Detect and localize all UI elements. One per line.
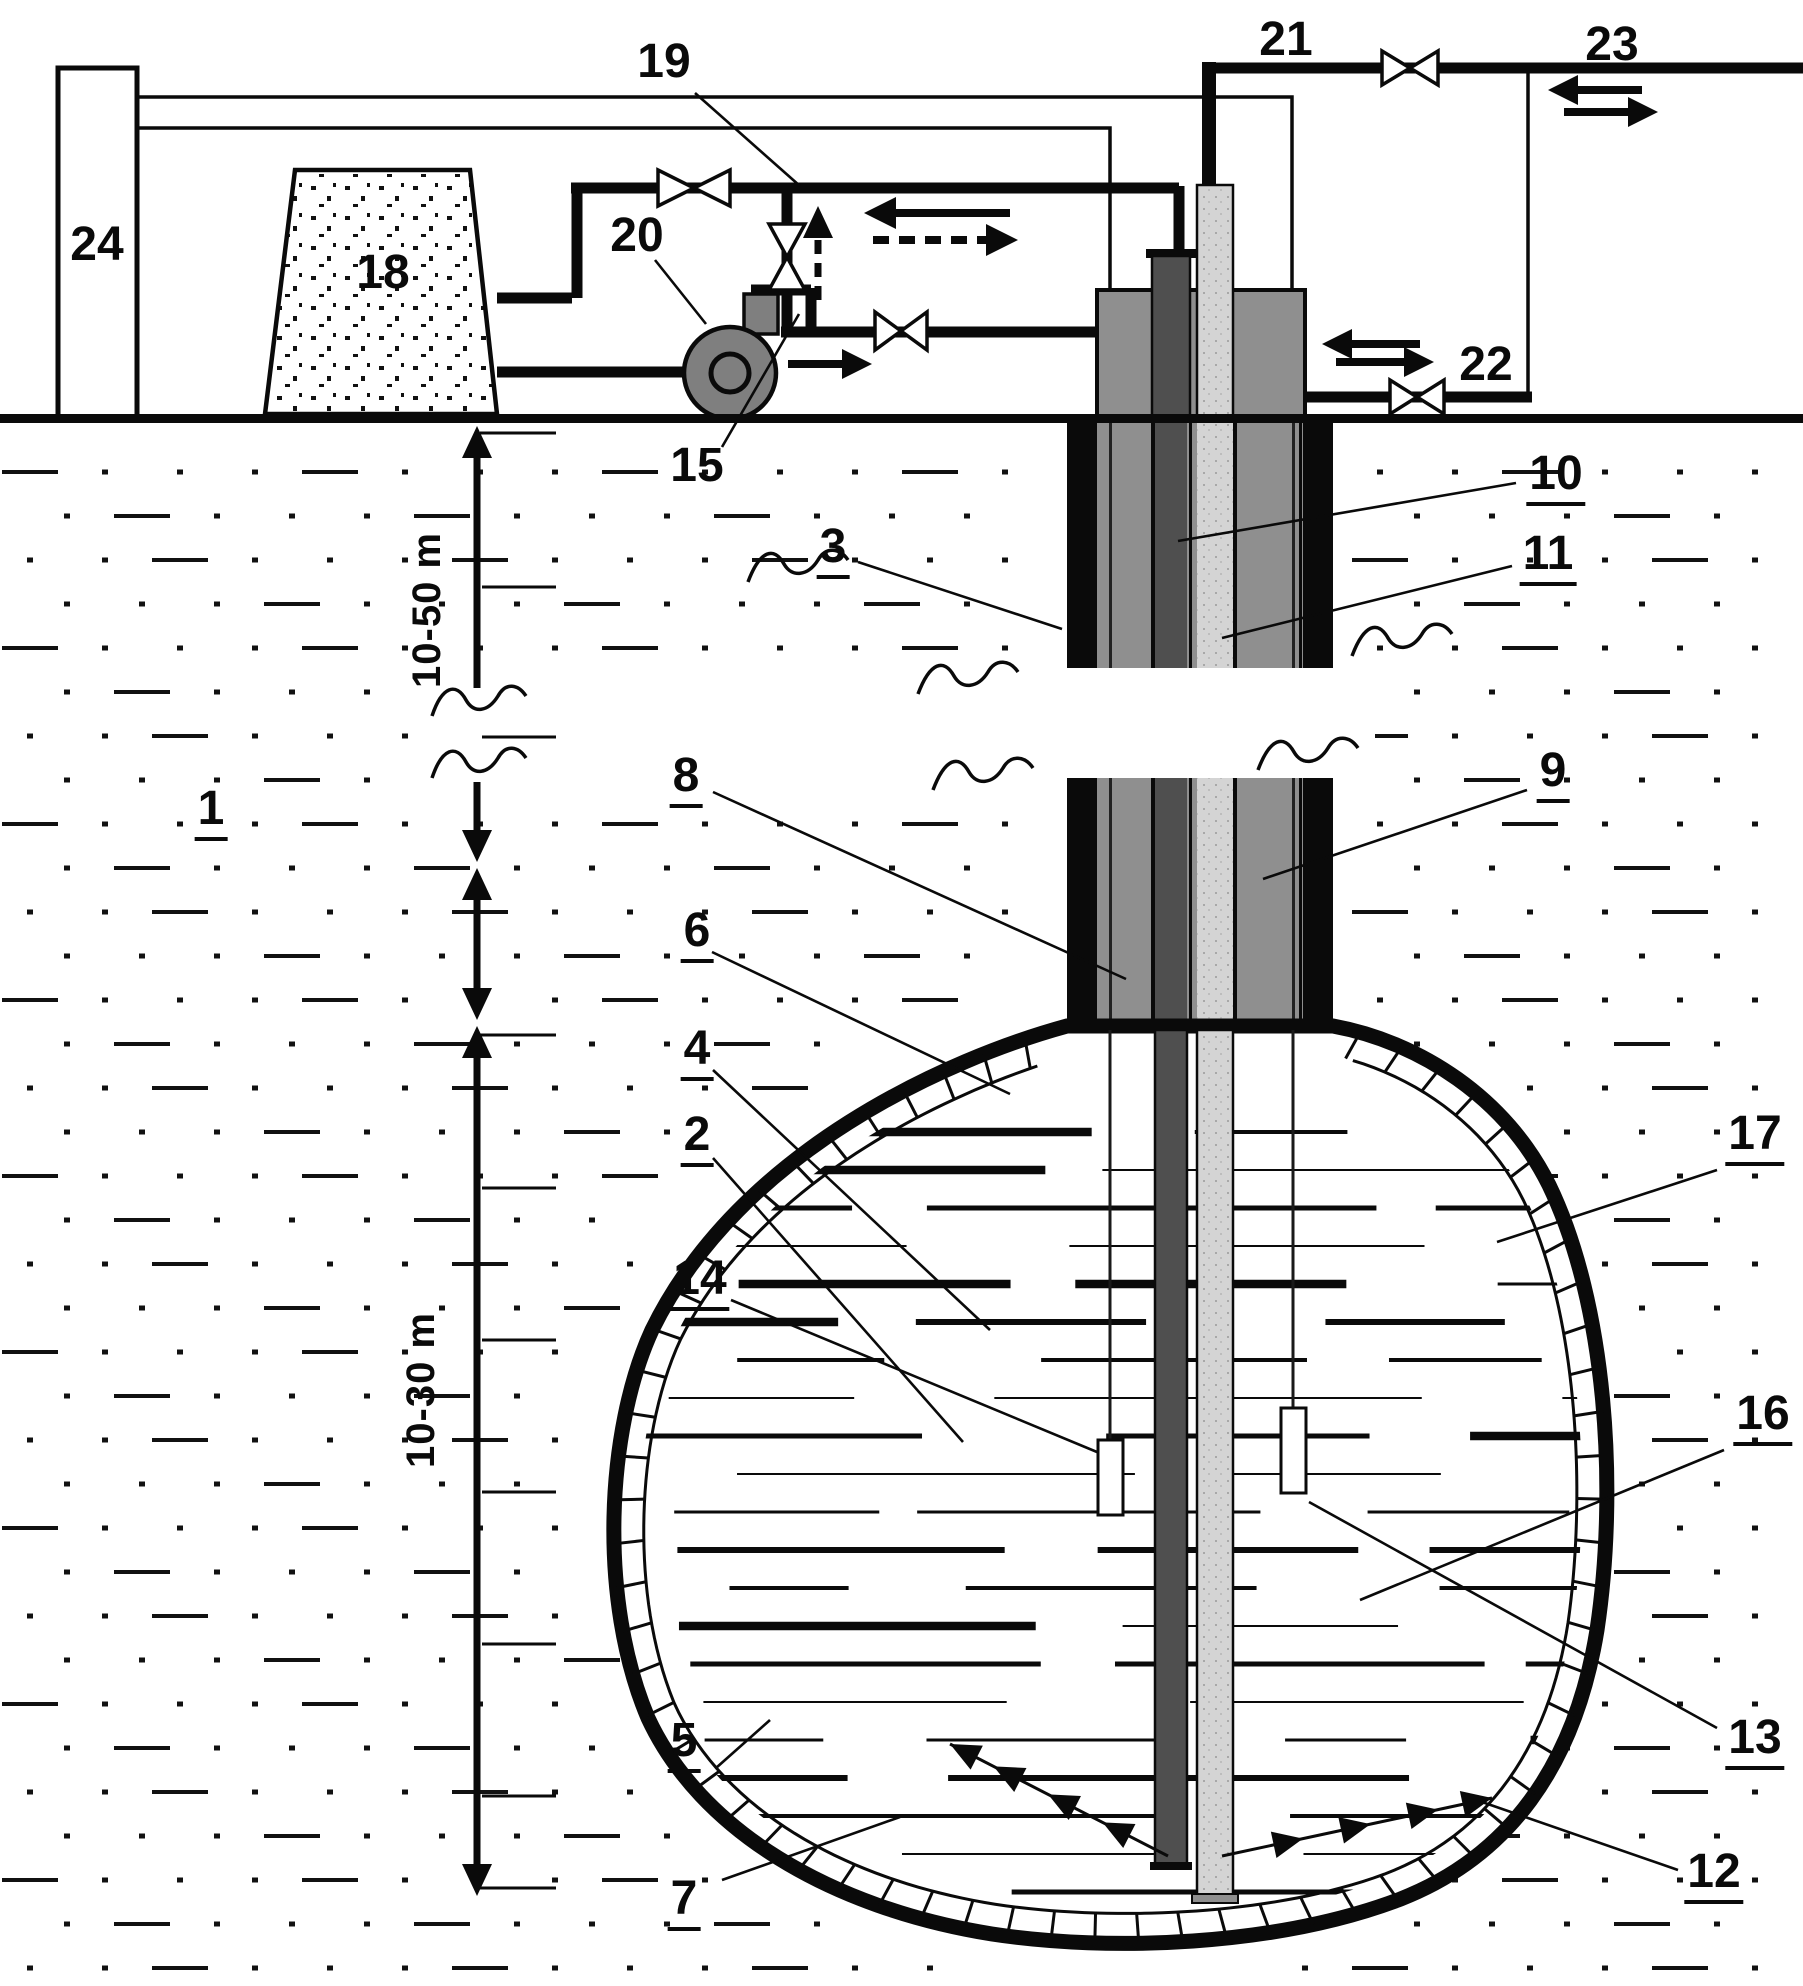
valve-icon <box>875 312 927 350</box>
flow-arrow-right-icon <box>788 349 872 379</box>
central-pipe <box>1197 1030 1233 1898</box>
flow-arrow-right-dashed-icon <box>873 224 1018 256</box>
flow-arrow-right-icon <box>1564 97 1658 127</box>
surface-plant <box>58 51 1803 419</box>
valve-icon <box>658 170 730 206</box>
valve-icon <box>1382 51 1438 85</box>
cavern <box>603 1026 1670 1943</box>
flow-arrow-left-icon <box>1548 75 1642 105</box>
dimension-ticks <box>480 433 556 1888</box>
sensor-13 <box>1281 1408 1306 1493</box>
depth-dimensions <box>462 426 556 1896</box>
sensor-14 <box>1098 1440 1123 1515</box>
surface-unit-24 <box>58 68 137 417</box>
diagram-graphics <box>0 0 1803 1986</box>
pipe-outlet-cap <box>1150 1862 1192 1870</box>
injection-pipe <box>1155 1030 1187 1866</box>
ground-surface-line <box>0 414 1803 423</box>
storage-pile-18 <box>265 170 497 414</box>
valve-icon <box>1390 380 1444 414</box>
central-pipe-top <box>1197 185 1233 417</box>
borehole-upper-segment <box>1067 423 1333 668</box>
flow-arrow-left-icon <box>864 197 1010 229</box>
valve-icon <box>769 224 805 290</box>
tubing-head-riser <box>1202 62 1216 190</box>
patent-diagram-canvas: 2418192015212322101138964214171613125711… <box>0 0 1803 1986</box>
pipe-foot <box>1192 1894 1238 1903</box>
borehole-lower-segment <box>1067 778 1333 1030</box>
injection-pipe-top <box>1152 256 1190 417</box>
